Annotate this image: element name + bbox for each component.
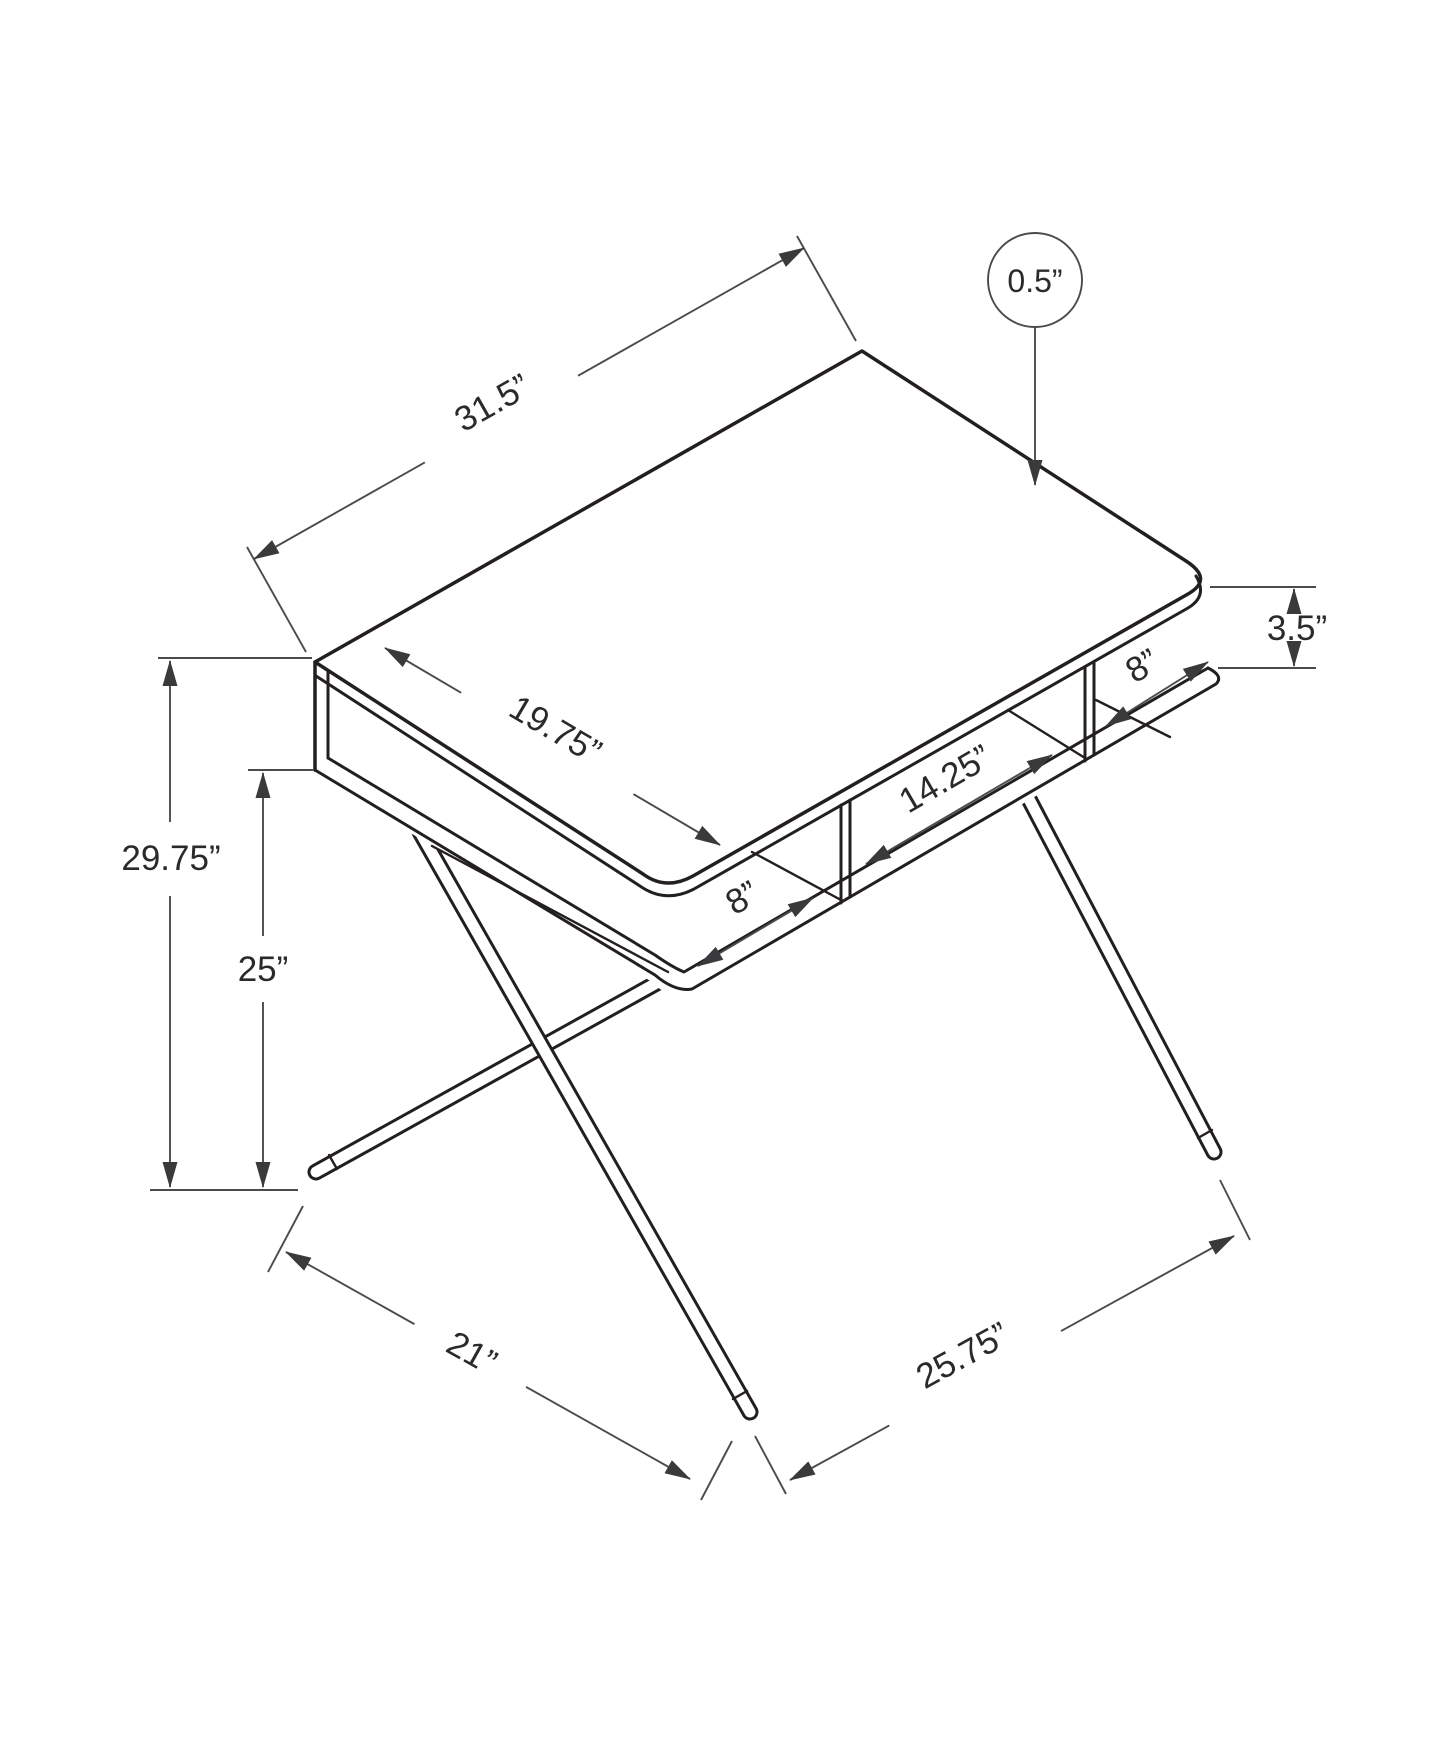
desk-line-drawing: 31.5” 0.5” 19.75” 3.5” 8” 14.25” — [0, 0, 1445, 1754]
leg-left-back — [316, 970, 680, 1172]
dim-cubby-height: 3.5” — [1210, 587, 1327, 668]
dim-foot-width: 25.75” — [755, 1180, 1250, 1494]
leg-right-front — [1020, 782, 1214, 1152]
dim-label-clearance-height: 25” — [238, 950, 289, 989]
dim-clearance-height: 25” — [238, 770, 314, 1187]
dim-label-top-thickness: 0.5” — [1007, 263, 1062, 299]
dim-label-cubby-height: 3.5” — [1267, 609, 1327, 648]
dim-label-overall-height: 29.75” — [121, 839, 220, 878]
desk-dimension-diagram: 31.5” 0.5” 19.75” 3.5” 8” 14.25” — [0, 0, 1445, 1754]
dim-overall-height: 29.75” — [121, 658, 312, 1190]
